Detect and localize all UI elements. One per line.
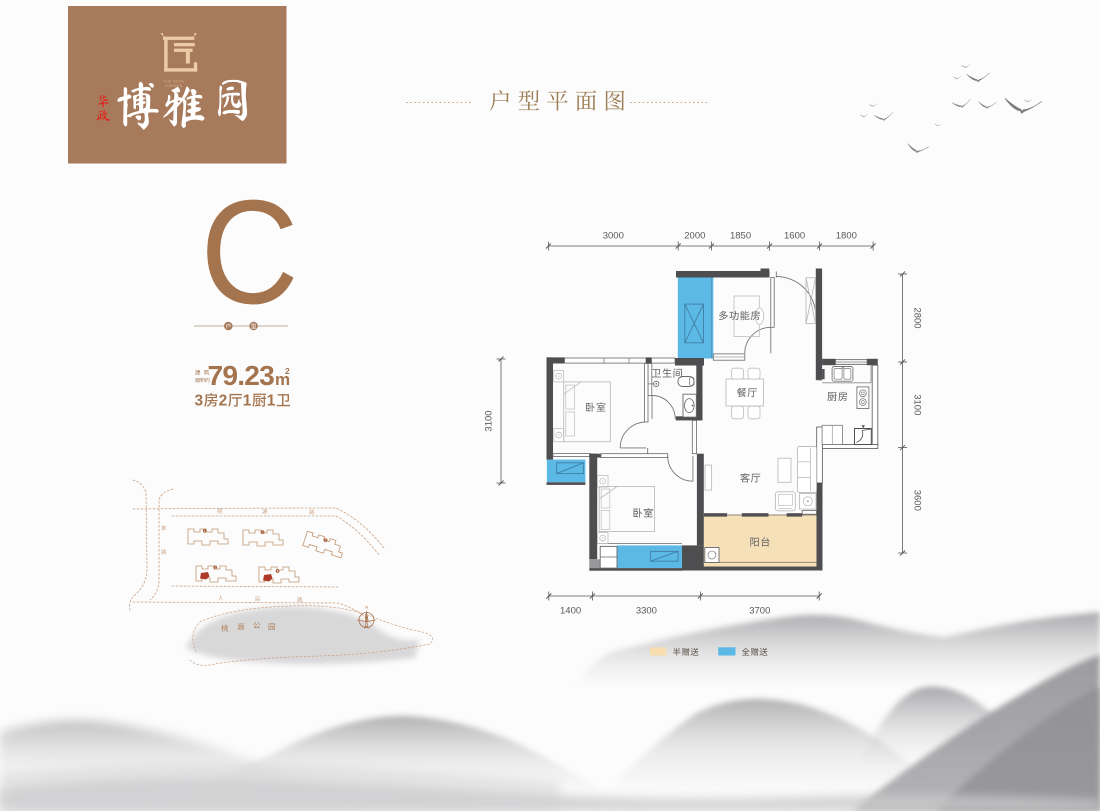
svg-text:3700: 3700 [749, 606, 770, 617]
svg-text:3100: 3100 [912, 394, 923, 415]
svg-text:3: 3 [195, 393, 204, 410]
svg-text:79.23: 79.23 [208, 359, 275, 391]
svg-text:2: 2 [219, 393, 228, 410]
svg-text:C: C [200, 170, 298, 335]
svg-text:2000: 2000 [684, 231, 705, 242]
svg-text:3300: 3300 [636, 606, 657, 617]
svg-text:1: 1 [243, 393, 252, 410]
svg-text:1600: 1600 [784, 231, 805, 242]
svg-text:GARDEN: GARDEN [165, 84, 182, 88]
svg-text:1: 1 [267, 393, 276, 410]
svg-text:1400: 1400 [560, 606, 581, 617]
svg-text:3600: 3600 [912, 490, 923, 511]
svg-text:1800: 1800 [836, 231, 857, 242]
svg-text:2: 2 [285, 366, 290, 376]
svg-text:3000: 3000 [603, 231, 624, 242]
svg-text:THE BOYA: THE BOYA [164, 80, 185, 84]
svg-text:3100: 3100 [484, 410, 495, 431]
svg-text:1850: 1850 [730, 231, 751, 242]
svg-text:2800: 2800 [912, 307, 923, 328]
svg-text:N: N [365, 605, 368, 610]
